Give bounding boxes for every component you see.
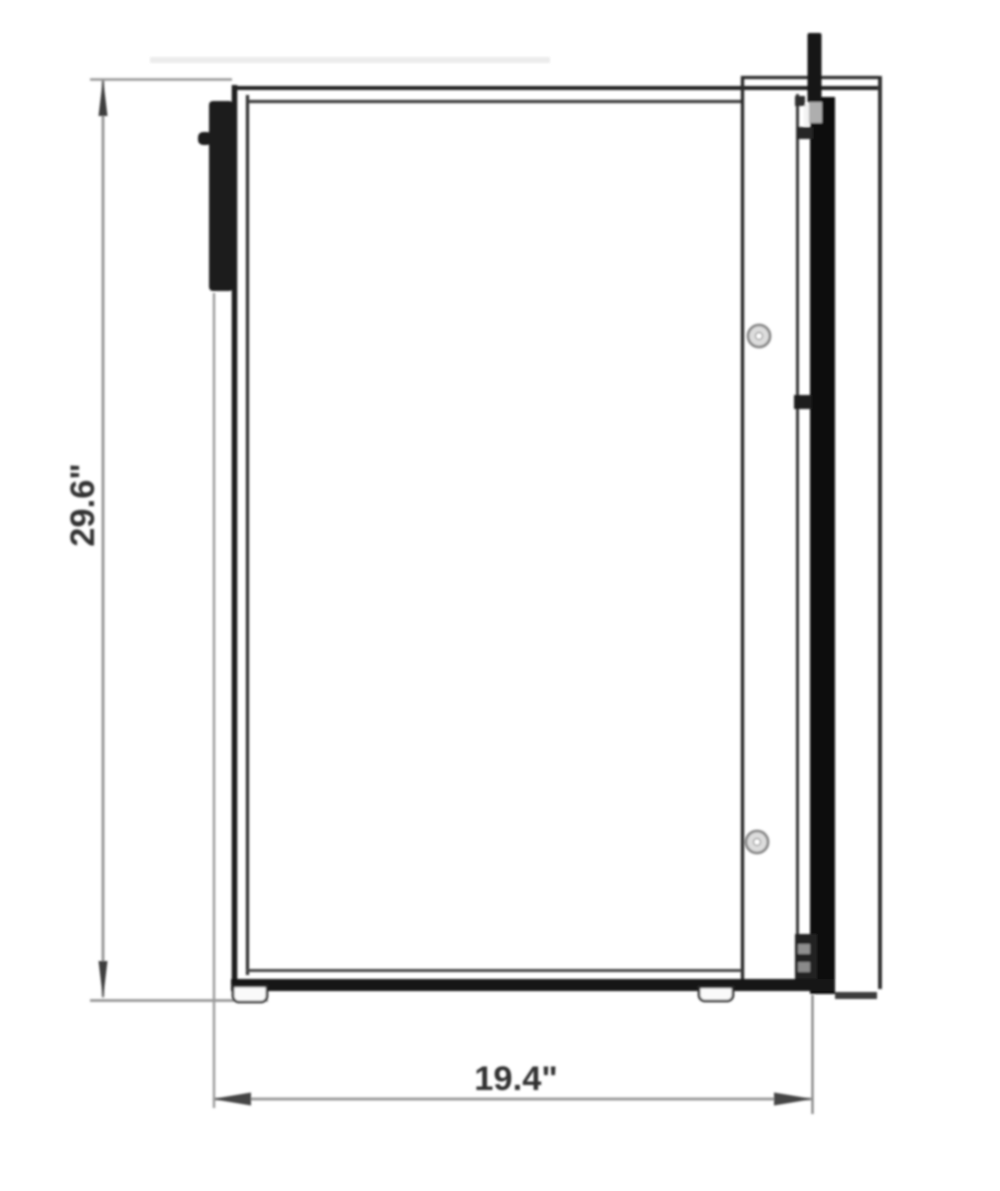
svg-text:19.4": 19.4": [474, 1060, 558, 1098]
svg-text:29.6": 29.6": [64, 463, 102, 547]
